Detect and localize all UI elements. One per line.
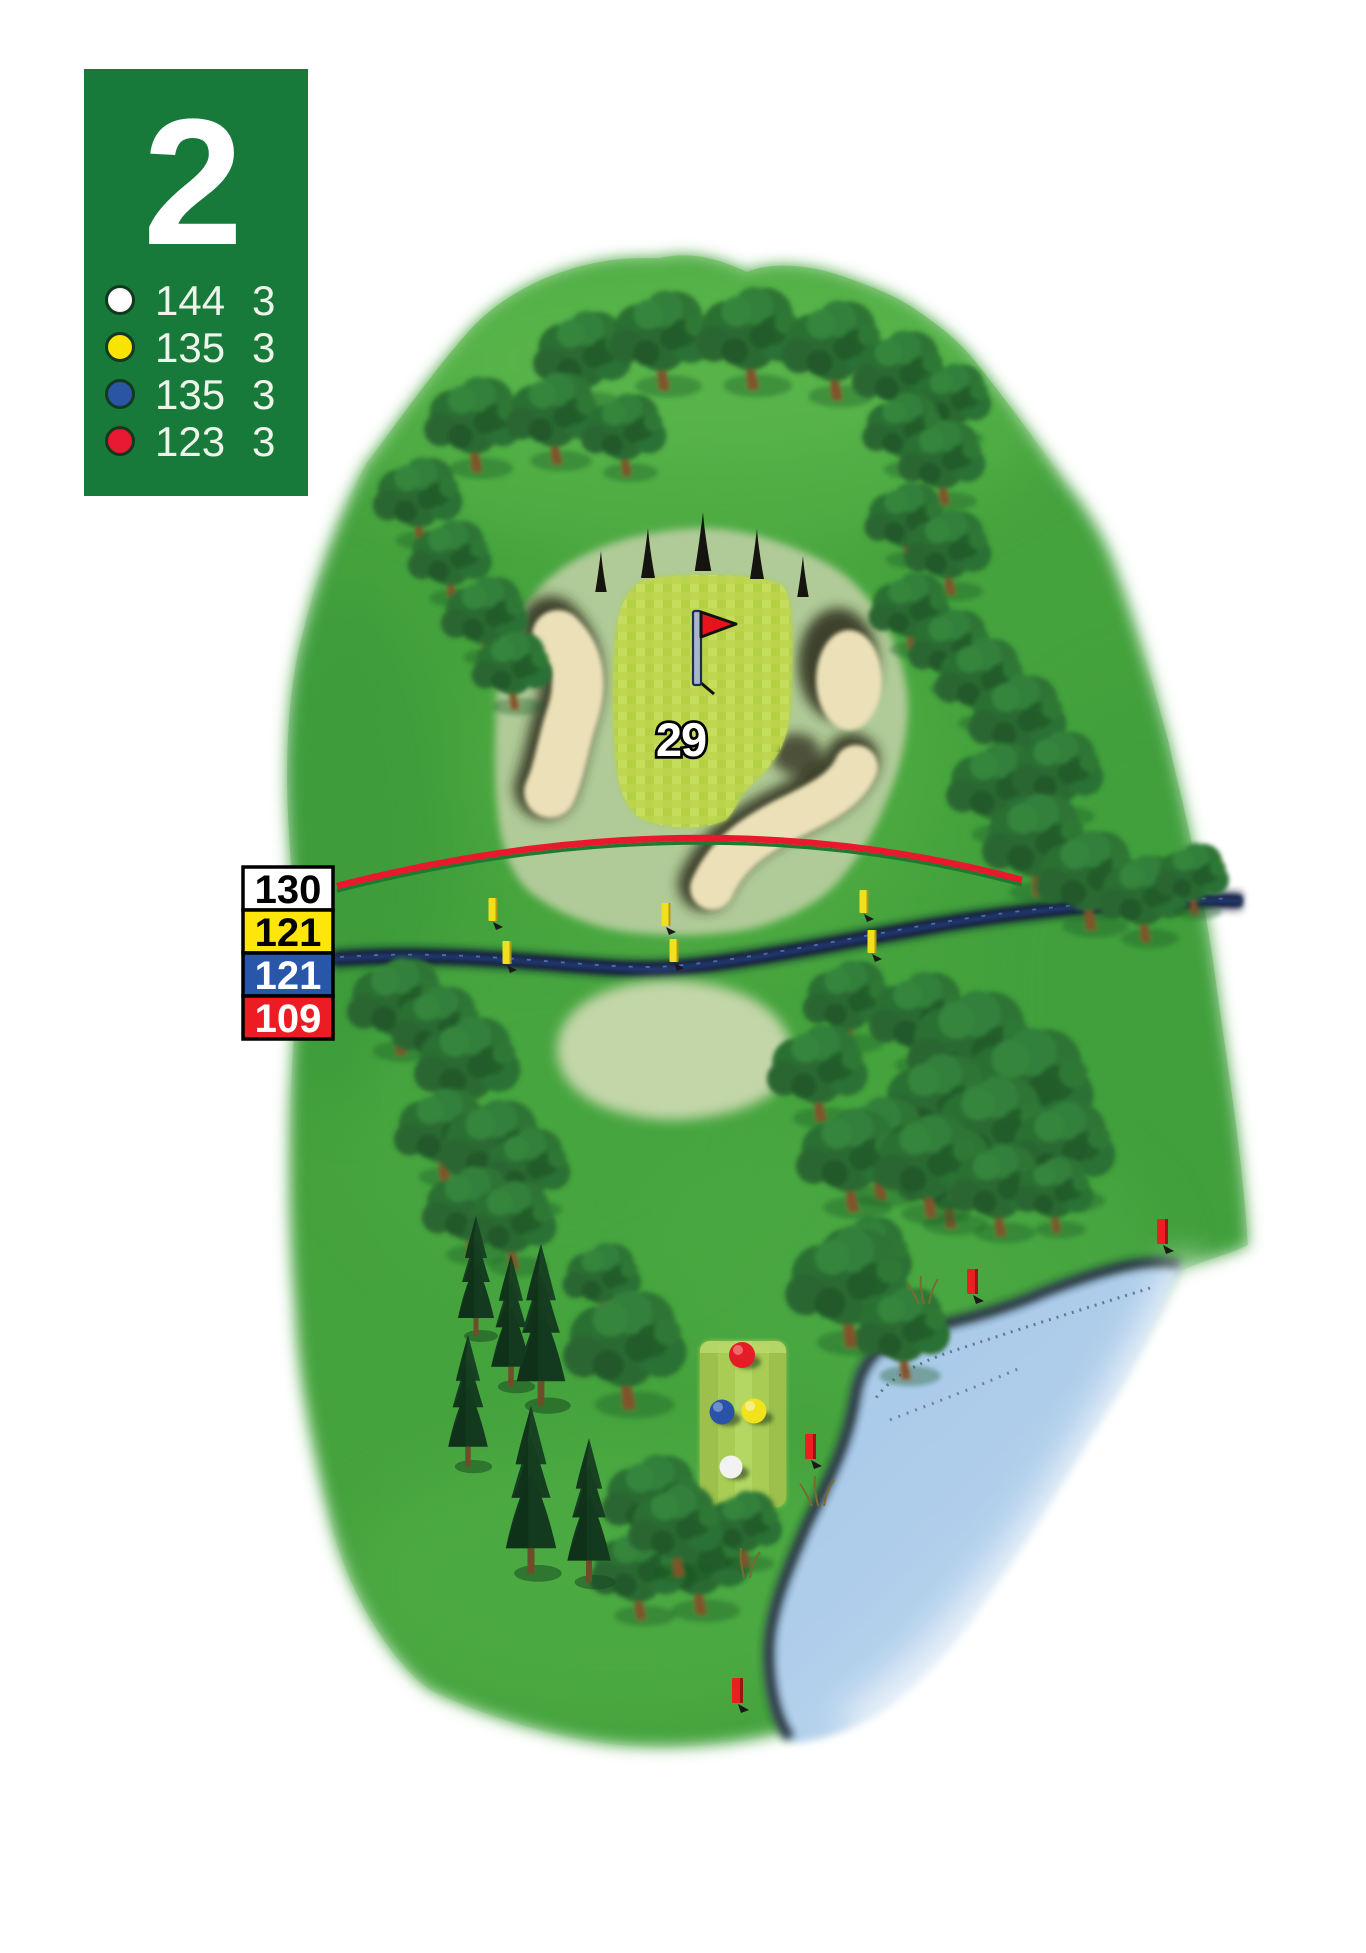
svg-text:2: 2 [143, 82, 243, 283]
svg-text:144: 144 [155, 277, 225, 324]
svg-text:3: 3 [252, 418, 275, 465]
svg-text:135: 135 [155, 371, 225, 418]
svg-text:121: 121 [255, 954, 322, 998]
svg-text:123: 123 [155, 418, 225, 465]
svg-text:29: 29 [656, 713, 706, 766]
svg-text:109: 109 [255, 997, 322, 1041]
svg-text:130: 130 [255, 868, 322, 912]
svg-text:135: 135 [155, 324, 225, 371]
svg-text:3: 3 [252, 277, 275, 324]
svg-text:3: 3 [252, 371, 275, 418]
svg-text:3: 3 [252, 324, 275, 371]
svg-text:121: 121 [255, 911, 322, 955]
